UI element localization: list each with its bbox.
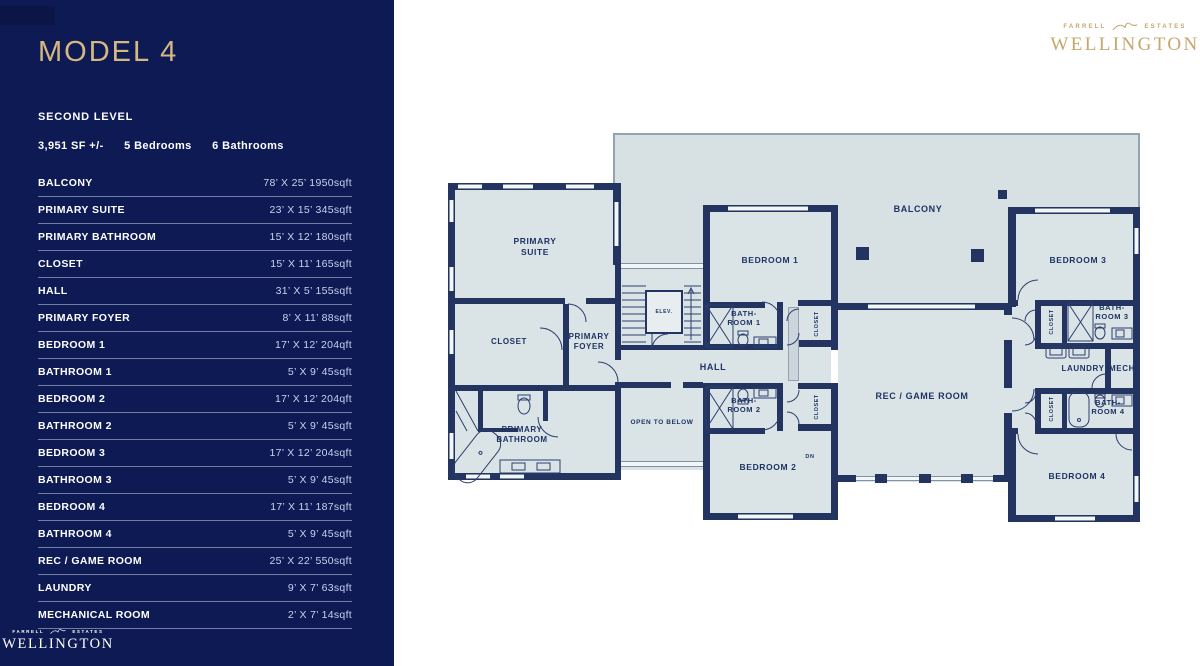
wall	[703, 388, 710, 520]
window	[466, 474, 490, 479]
wall	[1035, 300, 1041, 345]
label-line: BATH-	[727, 309, 760, 318]
window	[1134, 476, 1139, 502]
label-line: BATH-	[1095, 303, 1128, 312]
wall	[831, 388, 838, 520]
label-line: PRIMARY	[569, 332, 610, 342]
wall	[478, 391, 483, 431]
wall	[777, 302, 783, 350]
balcony-column	[856, 247, 869, 260]
window	[500, 474, 524, 479]
wall	[1008, 300, 1018, 306]
floor-plan: BALCONY PRIMARY SUITE CLOSET PRIMARY FOY…	[0, 0, 1200, 666]
rail-post	[961, 474, 973, 483]
wall	[621, 382, 671, 388]
wall	[1004, 340, 1012, 388]
wall	[703, 205, 710, 350]
label-line: SUITE	[513, 247, 556, 258]
wall	[1008, 430, 1016, 522]
rail-post	[875, 474, 887, 483]
rail-post	[919, 474, 931, 483]
window	[1035, 208, 1110, 213]
wall	[448, 385, 621, 391]
window	[614, 202, 619, 246]
label-closet1: CLOSET	[814, 311, 820, 336]
label-primary-suite: PRIMARY SUITE	[513, 236, 556, 257]
label-line: BATH-	[727, 396, 760, 405]
label-line: BATHROOM	[496, 435, 547, 445]
label-bedroom2: BEDROOM 2	[740, 462, 797, 473]
label-line: ROOM 3	[1095, 312, 1128, 321]
label-laundry: LAUNDRY	[1061, 364, 1104, 374]
wall	[1062, 300, 1067, 345]
label-mech: MECH	[1109, 364, 1135, 374]
window	[458, 184, 482, 189]
label-bathroom2: BATH- ROOM 2	[727, 396, 760, 415]
label-rec-game-room: REC / GAME ROOM	[875, 391, 968, 402]
wall	[703, 383, 783, 389]
wall	[798, 424, 838, 431]
wall	[1008, 207, 1016, 307]
wall	[831, 205, 838, 350]
wall	[798, 340, 838, 347]
label-closet-main: CLOSET	[491, 337, 527, 347]
window	[1055, 516, 1095, 521]
label-line: PRIMARY	[513, 236, 556, 247]
label-bathroom4: BATH- ROOM 4	[1091, 398, 1124, 417]
wall	[1035, 388, 1041, 430]
wall	[838, 475, 856, 482]
label-primary-bathroom: PRIMARY BATHROOM	[496, 425, 547, 445]
label-elevator: ELEV.	[656, 309, 673, 315]
label-dn: DN	[805, 454, 814, 461]
label-bathroom3: BATH- ROOM 3	[1095, 303, 1128, 322]
wall	[1035, 343, 1140, 349]
wall	[1040, 428, 1140, 434]
label-line: ROOM 4	[1091, 407, 1124, 416]
label-primary-foyer: PRIMARY FOYER	[569, 332, 610, 352]
label-line: ROOM 2	[727, 405, 760, 414]
window	[868, 304, 975, 309]
label-bedroom4: BEDROOM 4	[1049, 471, 1106, 482]
wall	[683, 382, 703, 388]
window	[1134, 228, 1139, 254]
label-closet3: CLOSET	[1049, 309, 1055, 334]
wall	[448, 298, 565, 304]
window	[503, 184, 533, 189]
window	[449, 433, 454, 459]
window	[449, 200, 454, 222]
hall-pocket-door	[788, 307, 799, 381]
stair-top-rail	[621, 263, 703, 269]
window	[728, 206, 808, 211]
wall	[1062, 388, 1067, 430]
window	[566, 184, 594, 189]
label-closet4: CLOSET	[1049, 396, 1055, 421]
brochure-page: { "colors": {"sidebar_navy": "#0d1a54", …	[0, 0, 1200, 666]
wall	[621, 345, 703, 350]
label-line: ROOM 1	[727, 318, 760, 327]
wall	[777, 383, 783, 431]
wall	[703, 302, 765, 308]
wall	[798, 383, 838, 389]
label-bathroom1: BATH- ROOM 1	[727, 309, 760, 328]
balcony-column	[971, 249, 984, 262]
wall	[586, 298, 621, 304]
window	[449, 330, 454, 354]
window	[449, 267, 454, 291]
window	[738, 514, 793, 519]
label-line: BATH-	[1091, 398, 1124, 407]
label-balcony: BALCONY	[894, 204, 943, 215]
open-to-below-area	[621, 388, 703, 470]
label-bedroom3: BEDROOM 3	[1050, 255, 1107, 266]
label-open-to-below: OPEN TO BELOW	[631, 419, 694, 427]
label-closet2: CLOSET	[814, 394, 820, 419]
open-below-rail	[621, 461, 703, 467]
label-line: PRIMARY	[496, 425, 547, 435]
label-bedroom1: BEDROOM 1	[742, 255, 799, 266]
wall	[703, 428, 765, 434]
label-hall: HALL	[700, 362, 726, 373]
balcony-column	[998, 190, 1007, 199]
label-line: FOYER	[569, 342, 610, 352]
wall	[1035, 388, 1140, 394]
wall	[798, 300, 838, 306]
wall	[543, 391, 548, 421]
wall	[703, 344, 783, 350]
